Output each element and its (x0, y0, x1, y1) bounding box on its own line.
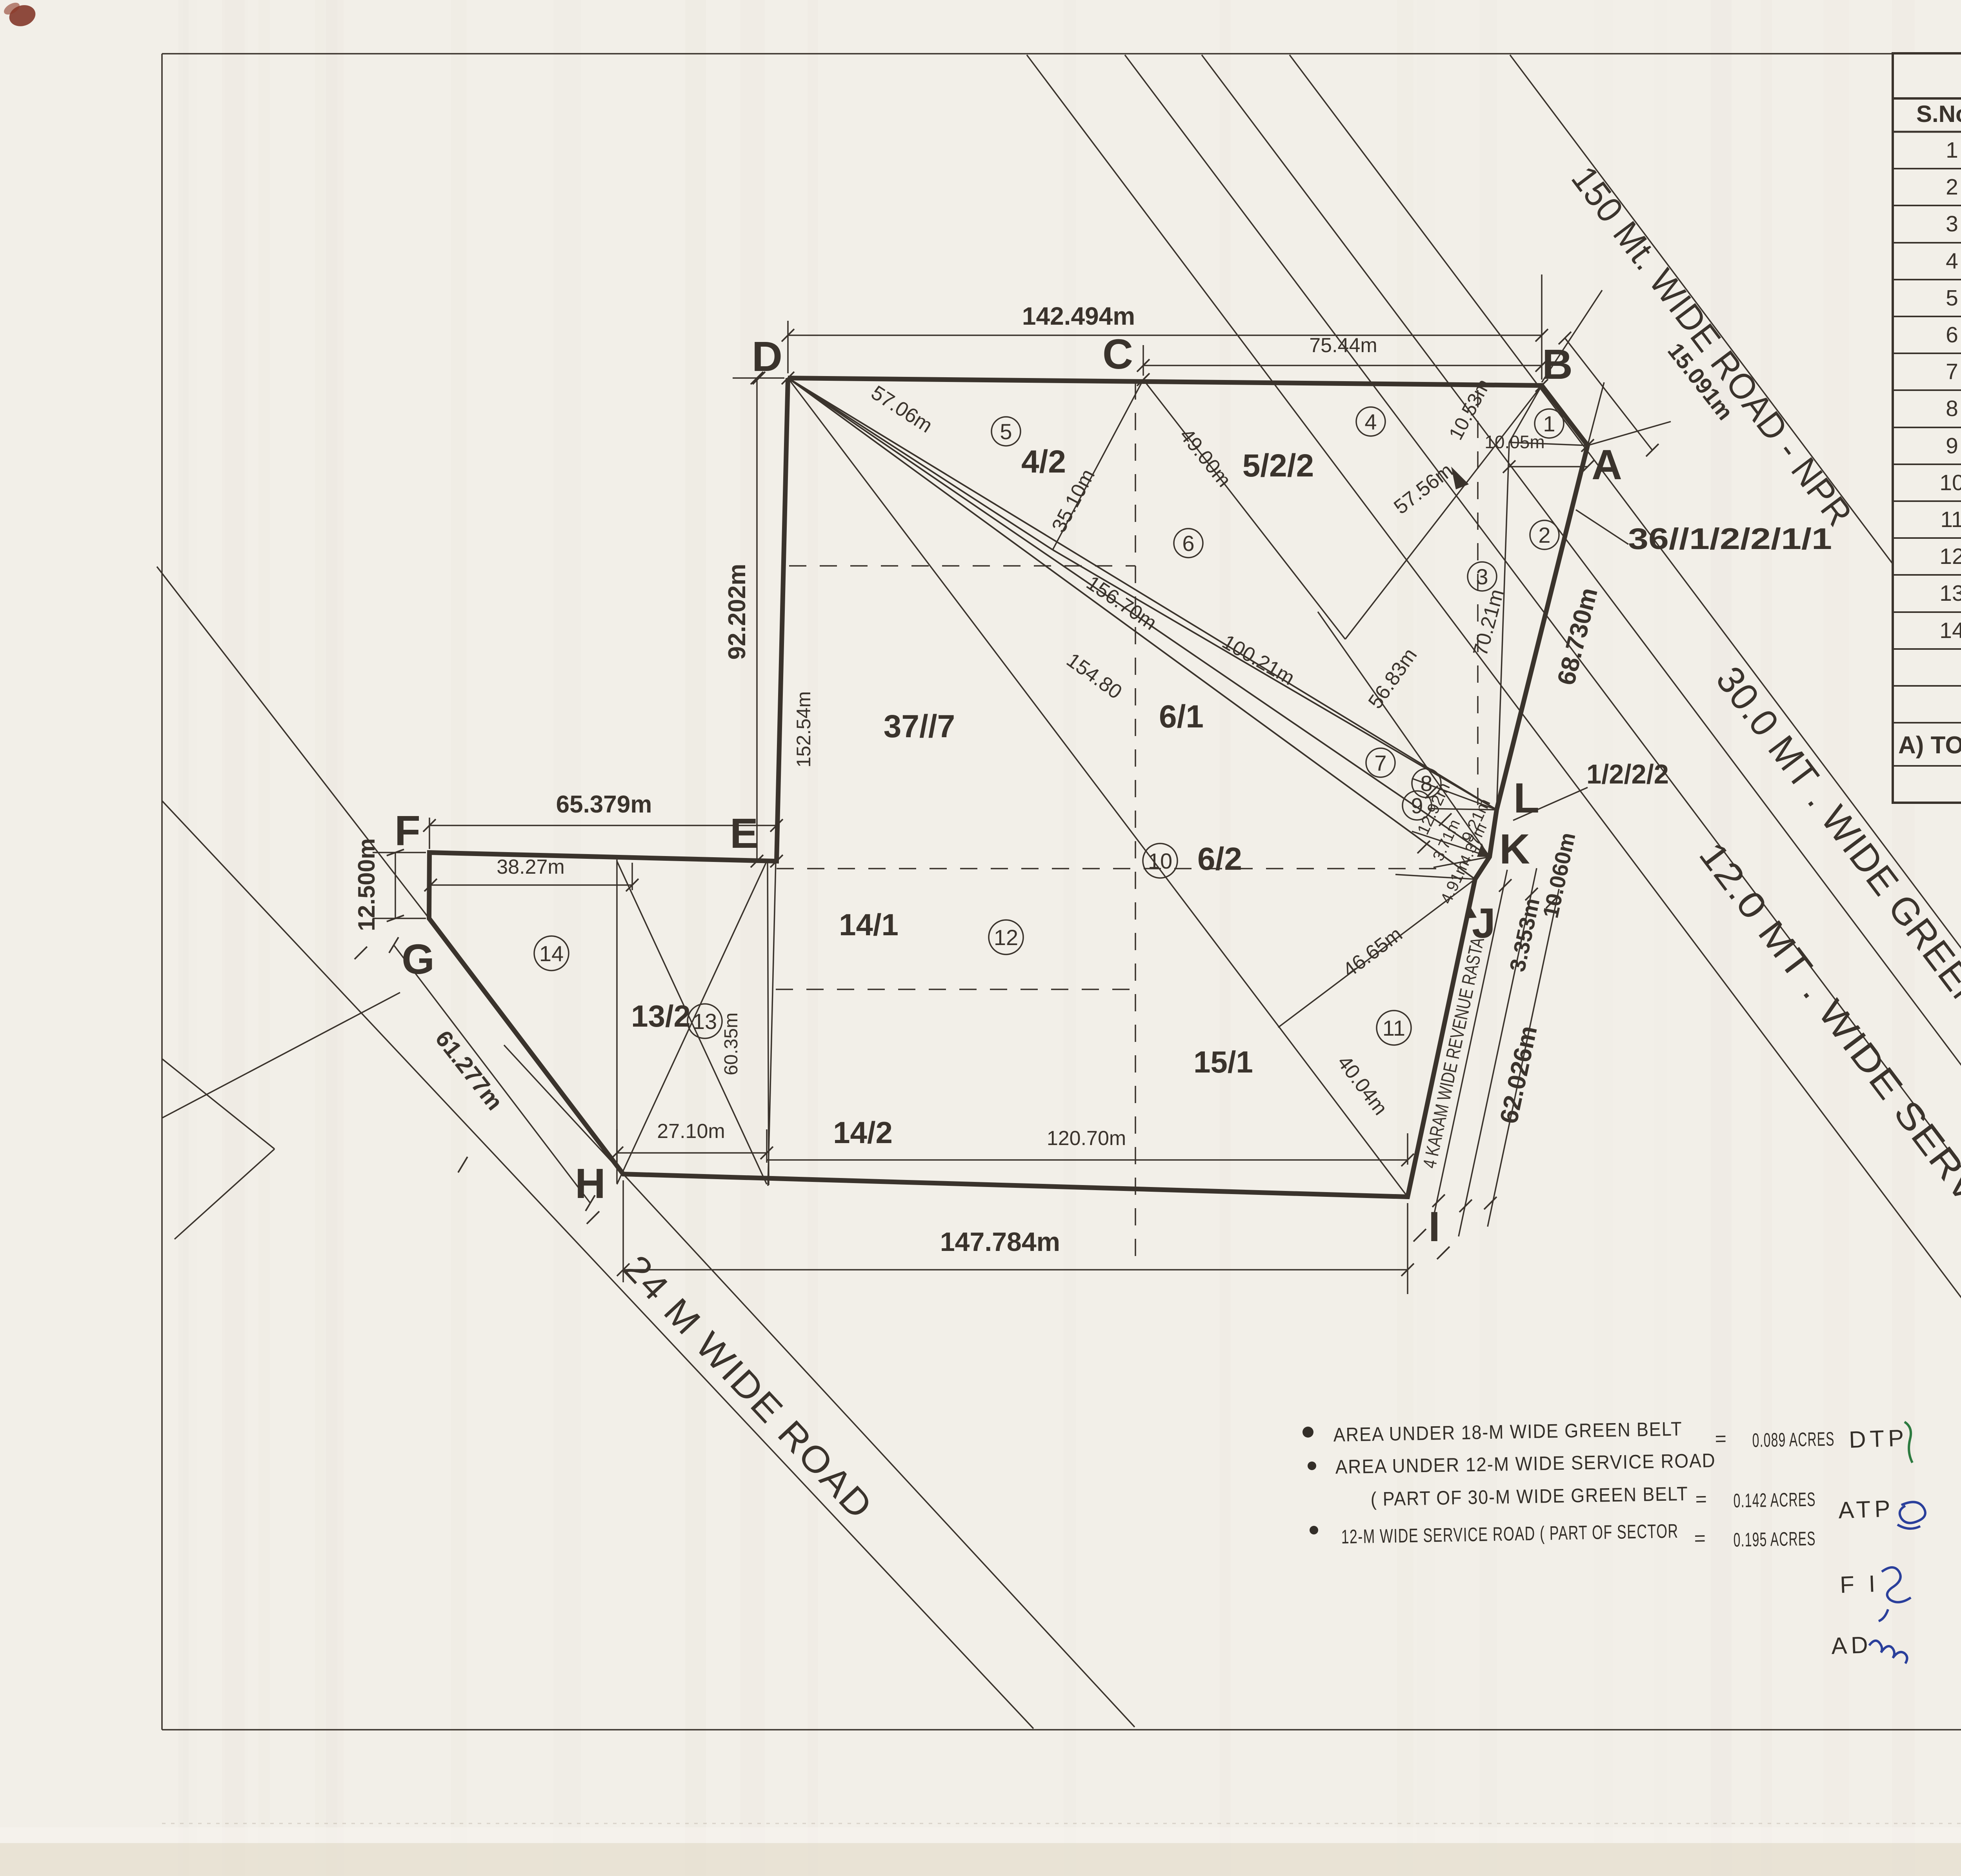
svg-text:13: 13 (693, 1009, 717, 1034)
svg-text:6/2: 6/2 (1197, 841, 1242, 877)
svg-text:14: 14 (1939, 618, 1961, 643)
svg-text:75.44m: 75.44m (1309, 334, 1377, 357)
svg-text:4: 4 (1364, 409, 1377, 434)
svg-text:11: 11 (1940, 507, 1961, 532)
svg-text:37//7: 37//7 (884, 709, 955, 744)
svg-text:6: 6 (1182, 531, 1194, 556)
svg-text:2: 2 (1946, 175, 1958, 200)
svg-text:D: D (752, 333, 782, 380)
svg-text:0.195 ACRES: 0.195 ACRES (1733, 1527, 1816, 1551)
svg-text:10.05m: 10.05m (1484, 432, 1544, 452)
svg-text:11: 11 (1383, 1016, 1405, 1040)
svg-text:H: H (575, 1160, 606, 1207)
svg-text:7: 7 (1946, 359, 1958, 384)
svg-text:1/2/2/2: 1/2/2/2 (1586, 759, 1669, 789)
svg-text:F: F (395, 807, 420, 854)
svg-text:A) TOTAL SITE AREA: A) TOTAL SITE AREA (1898, 732, 1961, 759)
svg-text:9: 9 (1946, 433, 1958, 458)
svg-text:14/2: 14/2 (833, 1115, 893, 1150)
svg-text:92.202m: 92.202m (724, 564, 751, 660)
svg-text:12: 12 (1939, 544, 1961, 569)
svg-text:K: K (1499, 825, 1530, 873)
svg-text:147.784m: 147.784m (940, 1227, 1060, 1257)
svg-text:L: L (1513, 774, 1539, 822)
svg-text:38.27m: 38.27m (497, 856, 564, 878)
svg-text:15/1: 15/1 (1193, 1045, 1253, 1079)
svg-text:S.No.: S.No. (1916, 101, 1961, 127)
svg-text:5: 5 (1946, 285, 1958, 311)
svg-text:=: = (1694, 1527, 1706, 1549)
svg-text:5/2/2: 5/2/2 (1242, 448, 1314, 484)
svg-text:B: B (1542, 340, 1573, 388)
svg-text:=: = (1695, 1488, 1708, 1510)
svg-text:ATP: ATP (1838, 1495, 1895, 1523)
svg-text:6/1: 6/1 (1159, 699, 1204, 734)
svg-text:142.494m: 142.494m (1022, 302, 1135, 330)
svg-text:3: 3 (1946, 211, 1958, 236)
svg-text:12.500m: 12.500m (353, 838, 380, 931)
svg-text:1: 1 (1946, 138, 1958, 163)
svg-text:36//1/2/2/1/1: 36//1/2/2/1/1 (1628, 522, 1832, 556)
svg-text:AD: AD (1831, 1631, 1872, 1659)
svg-text:120.70m: 120.70m (1047, 1127, 1126, 1150)
svg-text:10: 10 (1148, 849, 1172, 873)
svg-text:0.089 ACRES: 0.089 ACRES (1752, 1428, 1835, 1451)
svg-text:2: 2 (1538, 523, 1550, 547)
svg-text:13/2: 13/2 (631, 999, 691, 1033)
svg-text:12: 12 (994, 925, 1018, 950)
svg-text:10: 10 (1939, 470, 1961, 495)
svg-text:9: 9 (1411, 793, 1423, 818)
svg-text:C: C (1102, 330, 1133, 378)
svg-text:0.142 ACRES: 0.142 ACRES (1733, 1488, 1816, 1512)
svg-text:7: 7 (1374, 751, 1386, 775)
svg-text:65.379m: 65.379m (556, 791, 652, 818)
svg-text:152.54m: 152.54m (793, 691, 815, 768)
svg-text:F I: F I (1839, 1571, 1879, 1598)
svg-text:6: 6 (1946, 322, 1958, 347)
svg-text:14/1: 14/1 (839, 907, 899, 942)
svg-text:I: I (1428, 1203, 1440, 1250)
svg-text:3: 3 (1476, 564, 1488, 589)
svg-text:DTP: DTP (1848, 1425, 1908, 1453)
svg-text:1: 1 (1543, 411, 1555, 436)
svg-text:13: 13 (1939, 581, 1961, 606)
svg-text:E: E (730, 809, 758, 857)
svg-text:5: 5 (1000, 419, 1012, 444)
svg-text:A: A (1592, 441, 1622, 488)
svg-text:27.10m: 27.10m (657, 1120, 725, 1143)
svg-text:G: G (402, 935, 435, 983)
svg-text:8: 8 (1946, 396, 1958, 421)
svg-text:4: 4 (1946, 249, 1958, 274)
svg-text:14: 14 (539, 941, 564, 966)
svg-text:=: = (1715, 1427, 1727, 1450)
svg-text:4/2: 4/2 (1021, 444, 1066, 480)
svg-text:60.35m: 60.35m (721, 1013, 742, 1075)
